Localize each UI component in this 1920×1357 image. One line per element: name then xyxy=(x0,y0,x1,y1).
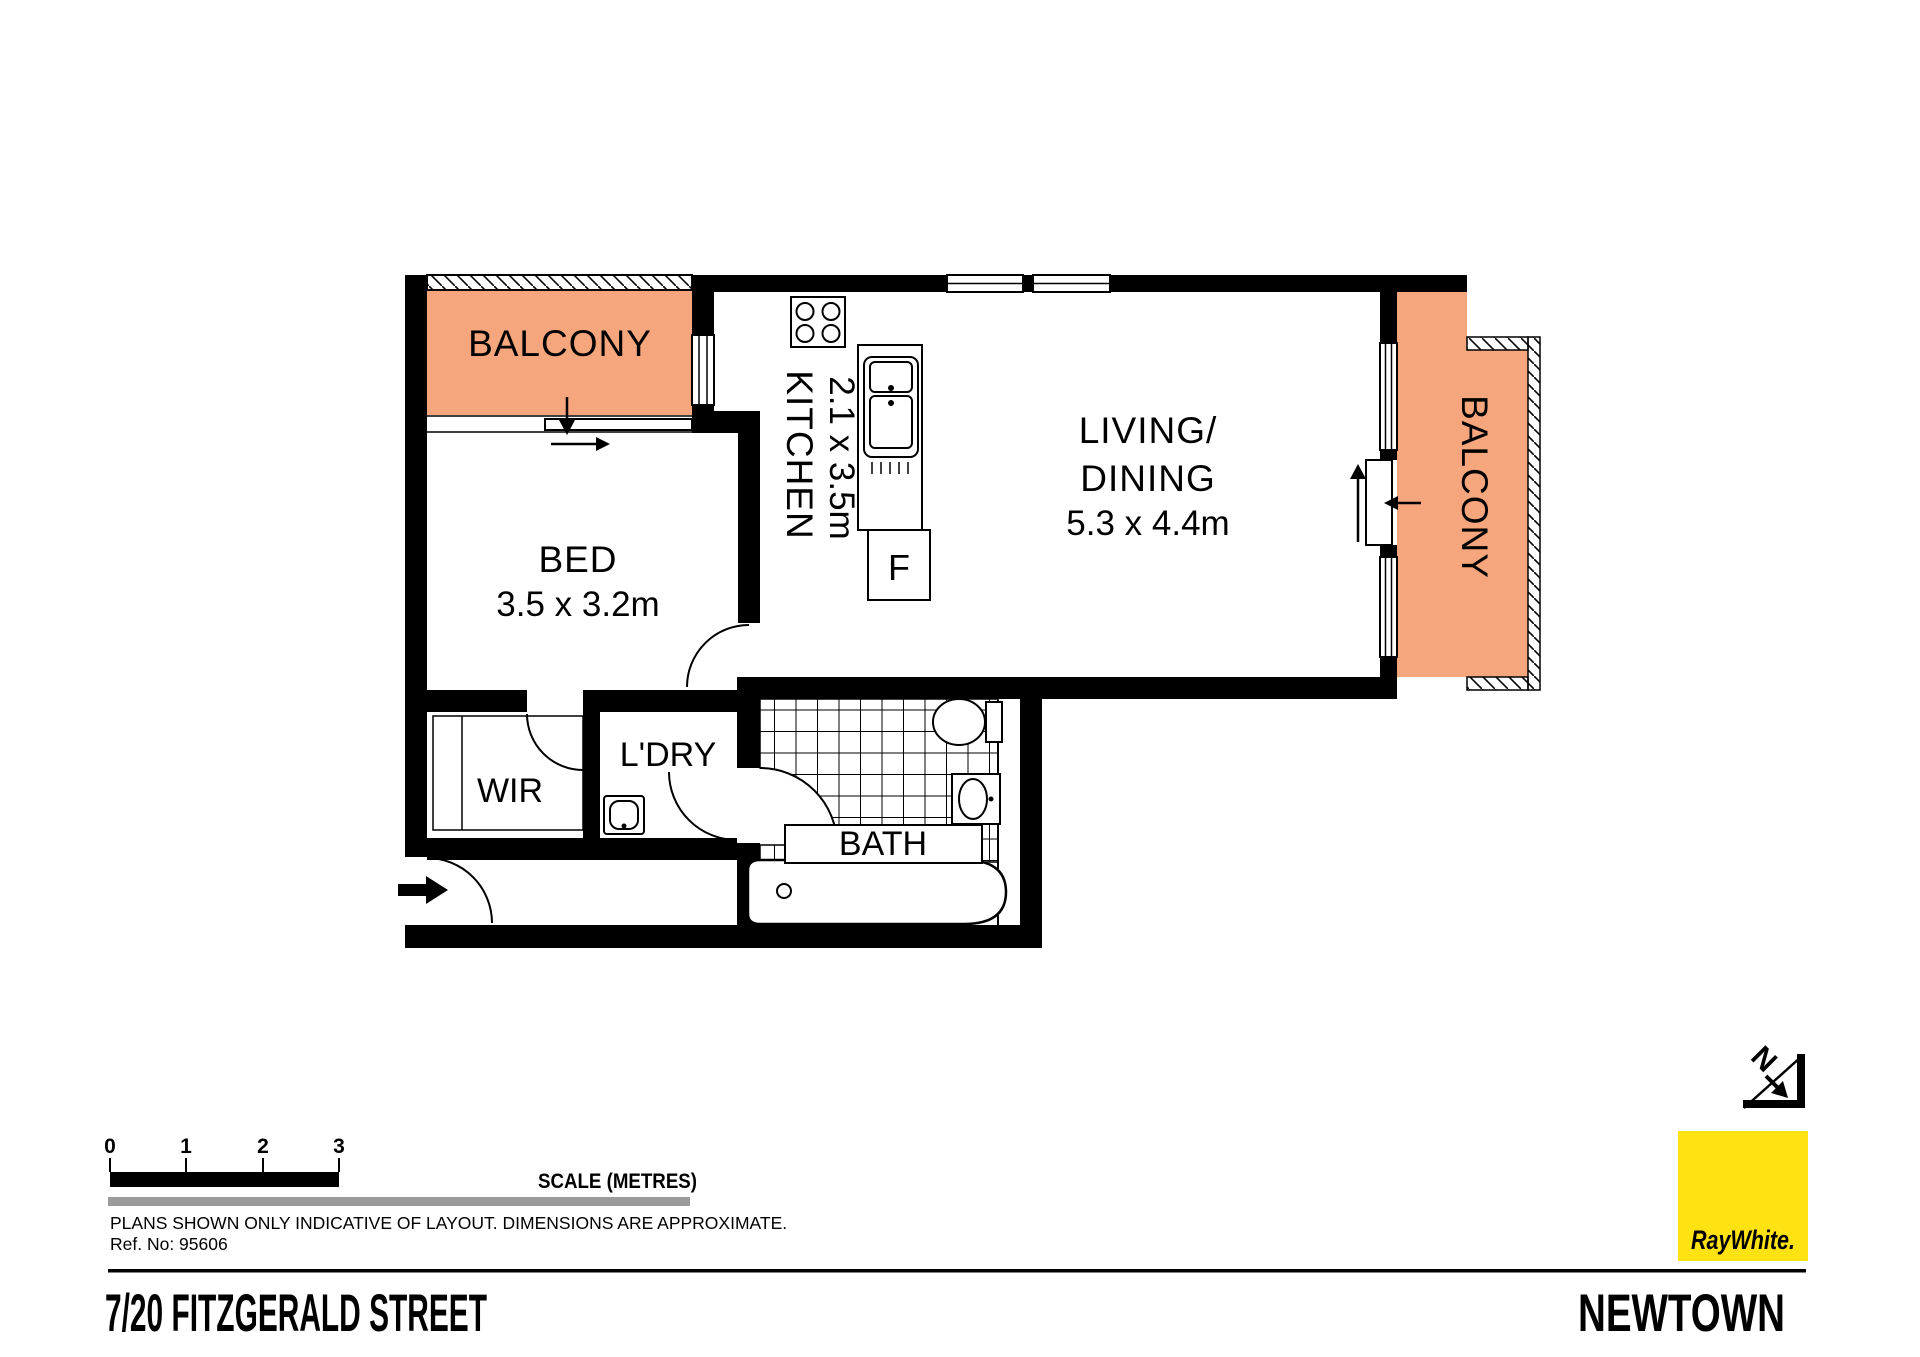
laundry-door-arc xyxy=(669,772,737,840)
raywhite-logo-text: RayWhite. xyxy=(1691,1225,1795,1255)
disclaimer-text: PLANS SHOWN ONLY INDICATIVE OF LAYOUT. D… xyxy=(110,1213,787,1233)
scale-tick-3: 3 xyxy=(333,1135,345,1158)
scale-title: SCALE (METRES) xyxy=(538,1170,697,1193)
wall-segment xyxy=(1023,275,1033,292)
wall-segment xyxy=(427,838,737,860)
wall-segment xyxy=(738,433,760,623)
wall-segment xyxy=(692,411,760,433)
bath-label-box: BATH xyxy=(785,825,982,863)
footer: 7/20 FITZGERALD STREET NEWTOWN xyxy=(105,1269,1806,1343)
plan-notes: PLANS SHOWN ONLY INDICATIVE OF LAYOUT. D… xyxy=(110,1213,787,1254)
fridge: F xyxy=(868,530,930,600)
stove xyxy=(791,297,845,347)
balcony-left-open-edge-hatch xyxy=(427,275,692,290)
scale-tick-0: 0 xyxy=(104,1135,116,1158)
footer-address: 7/20 FITZGERALD STREET xyxy=(105,1284,487,1343)
wall-segment xyxy=(1380,545,1397,557)
living-label-line2: DINING xyxy=(1080,458,1216,499)
wall-segment xyxy=(1020,699,1042,925)
balcony-right-hatch-side xyxy=(1528,337,1540,690)
balcony-left-label: BALCONY xyxy=(468,323,652,364)
entry-arrow-icon xyxy=(398,876,448,904)
raywhite-logo: RayWhite. xyxy=(1678,1131,1808,1261)
balcony-right-hatch-bottom xyxy=(1467,677,1528,690)
fridge-label: F xyxy=(888,547,910,588)
scale-tick-1: 1 xyxy=(180,1135,192,1158)
slide-arrow-right-head xyxy=(596,437,610,451)
footer-rule xyxy=(108,1269,1806,1273)
wall-segment xyxy=(583,712,600,838)
balcony-right-label: BALCONY xyxy=(1454,395,1495,579)
balcony-right-window-lower xyxy=(1380,557,1397,657)
bed-dims: 3.5 x 3.2m xyxy=(496,585,659,624)
bath-label: BATH xyxy=(839,825,927,863)
living-label-line1: LIVING/ xyxy=(1079,410,1218,451)
living-window-2 xyxy=(1033,275,1110,292)
wall-segment xyxy=(737,677,1397,699)
balcony-right-window-upper xyxy=(1380,343,1397,450)
wall-segment xyxy=(1110,275,1467,292)
living-dims: 5.3 x 4.4m xyxy=(1066,504,1229,543)
wall-segment xyxy=(405,275,427,857)
wall-segment xyxy=(1380,292,1397,343)
wall-segment xyxy=(1380,657,1397,699)
gray-divider-bar xyxy=(108,1197,690,1206)
north-indicator-icon: N xyxy=(1743,1040,1805,1108)
bed-label: BED xyxy=(538,539,617,580)
balcony-right-hatch-top xyxy=(1467,337,1528,350)
ref-number: Ref. No: 95606 xyxy=(110,1234,228,1254)
floorplan-canvas: F BATH xyxy=(0,0,1920,1357)
wall-segment xyxy=(692,287,714,335)
wir-label: WIR xyxy=(477,772,543,810)
wir-door-arc xyxy=(527,714,583,770)
wall-segment xyxy=(1380,450,1397,460)
kitchen-label: KITCHEN xyxy=(779,370,820,539)
scale-tick-2: 2 xyxy=(257,1135,269,1158)
slide-arrow-up-head xyxy=(1350,464,1366,479)
wall-segment xyxy=(405,925,1042,948)
wall-segment xyxy=(427,690,527,712)
kitchen-window xyxy=(692,335,714,405)
scale-bar-solid xyxy=(110,1172,339,1187)
wall-segment xyxy=(692,275,947,292)
bathtub xyxy=(748,860,1006,924)
scale-bar: 0 1 2 3 SCALE (METRES) xyxy=(104,1135,697,1206)
toilet xyxy=(933,699,1002,745)
laundry-label: L'DRY xyxy=(620,736,717,774)
kitchen-sink xyxy=(864,357,918,474)
footer-suburb: NEWTOWN xyxy=(1578,1284,1785,1343)
laundry-tub xyxy=(604,796,644,834)
living-window-1 xyxy=(947,275,1023,292)
wall-segment xyxy=(583,690,760,712)
floorplan-page: F BATH xyxy=(0,0,1920,1357)
kitchen-dims: 2.1 x 3.5m xyxy=(822,376,861,539)
north-letter: N xyxy=(1744,1040,1783,1079)
basin xyxy=(952,774,1000,824)
